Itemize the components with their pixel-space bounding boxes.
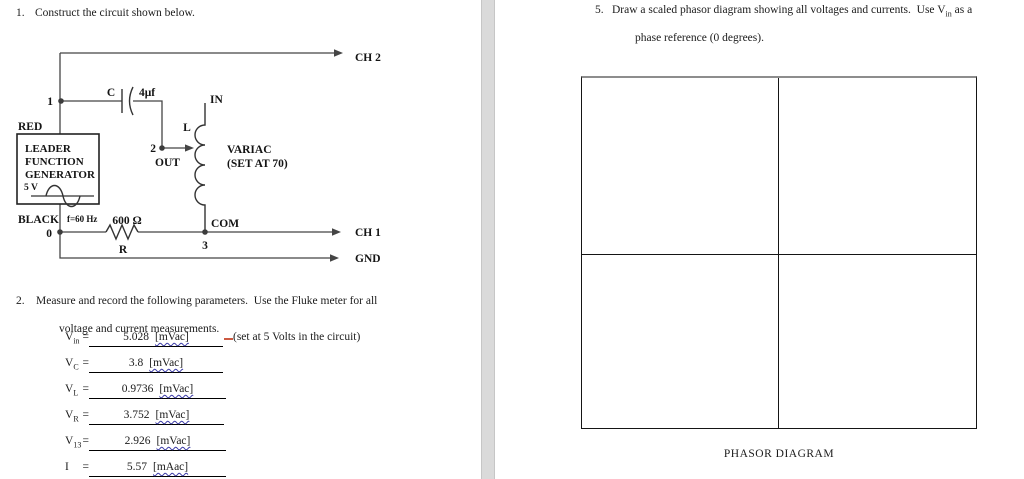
node-0-dot <box>57 229 63 235</box>
node-1-dot <box>58 98 64 104</box>
measurement-unit: [mVac] <box>157 435 191 447</box>
symbol: V13 <box>65 434 81 449</box>
measurement-value: 2.926 <box>125 435 151 447</box>
gnd-label: GND <box>355 253 381 265</box>
variac-label-line1: VARIAC <box>227 144 272 156</box>
question-1: 1. Construct the circuit shown below. <box>16 6 195 20</box>
arrowhead-variac-tap <box>185 144 194 151</box>
red-lead-label: RED <box>18 121 42 133</box>
measurement-row-vr: VR= 3.752[mVac] <box>65 408 224 425</box>
measurement-label: VC= <box>65 356 89 371</box>
ch2-label: CH 2 <box>355 52 381 64</box>
node-2-label: 2 <box>150 143 156 155</box>
phasor-grid-cell-top-left <box>582 78 778 254</box>
inductor-name: L <box>183 122 191 134</box>
symbol: Vin <box>65 330 80 345</box>
question-5-text: Draw a scaled phasor diagram showing all… <box>612 3 972 45</box>
document-view: 1. Construct the circuit shown below. <box>0 0 1024 479</box>
question-5-line2: phase reference (0 degrees). <box>635 32 764 44</box>
wire-capacitor-to-node2 <box>133 101 162 146</box>
capacitor-plate-right <box>130 87 134 115</box>
measurement-value: 5.028 <box>123 331 149 343</box>
measurement-label: V13= <box>65 434 89 449</box>
measurement-row-v13: V13= 2.926[mVac] <box>65 434 226 451</box>
grammar-mark <box>224 334 233 340</box>
symbol: VL <box>65 382 78 397</box>
measurement-value: 0.9736 <box>122 383 154 395</box>
generator-label-line2: FUNCTION <box>25 156 84 168</box>
fill-in-blank: 3.752[mVac] <box>89 408 224 425</box>
measurement-unit: [mAac] <box>153 461 188 473</box>
symbol: VR <box>65 408 79 423</box>
node-3-dot <box>202 229 208 235</box>
measurement-row-i: I= 5.57[mAac] <box>65 460 226 477</box>
measurement-row-vc: VC= 3.8[mVac] <box>65 356 223 373</box>
fill-in-blank: 0.9736[mVac] <box>89 382 226 399</box>
frequency-label: f=60 Hz <box>67 214 97 224</box>
measurement-unit: [mVac] <box>156 409 190 421</box>
fill-in-blank: 2.926[mVac] <box>89 434 226 451</box>
arrowhead-gnd <box>330 254 339 262</box>
capacitor-value: 4μf <box>139 87 155 99</box>
phasor-grid-cell-bottom-left <box>582 252 778 428</box>
page-divider <box>481 0 495 479</box>
node-2-dot <box>159 145 165 151</box>
node-1-label: 1 <box>47 96 53 108</box>
circuit-wires <box>60 49 343 262</box>
measurement-unit: [mVac] <box>149 357 183 369</box>
measurement-note: (set at 5 Volts in the circuit) <box>233 330 360 345</box>
phasor-grid <box>581 76 977 429</box>
resistor-zigzag <box>106 225 138 239</box>
question-2-number: 2. <box>16 294 36 336</box>
resistor-name: R <box>119 244 128 256</box>
symbol: I <box>65 460 69 475</box>
resistor-value: 600 Ω <box>112 215 141 227</box>
question-2-line1: Measure and record the following paramet… <box>36 295 377 307</box>
measurement-label: VR= <box>65 408 89 423</box>
black-lead-label: BLACK <box>18 214 59 226</box>
generator-voltage: 5 V <box>24 183 38 193</box>
measurement-unit: [mVac] <box>155 331 189 343</box>
symbol: VC <box>65 356 79 371</box>
ch1-label: CH 1 <box>355 227 381 239</box>
measurement-label: VL= <box>65 382 89 397</box>
measurement-row-vl: VL= 0.9736[mVac] <box>65 382 226 399</box>
fill-in-blank: 5.028[mVac] <box>89 330 223 347</box>
fill-in-blank: 3.8[mVac] <box>89 356 223 373</box>
measurement-value: 5.57 <box>127 461 147 473</box>
question-1-text: Construct the circuit shown below. <box>35 6 195 20</box>
inductor-coil <box>195 103 205 232</box>
circuit-diagram: CH 2 CH 1 GND 1 RED C 4μf 2 OUT IN L VAR… <box>0 40 480 290</box>
generator-label-line1: LEADER <box>25 143 72 155</box>
wire-gnd <box>60 232 330 258</box>
arrowhead-ch2 <box>334 49 343 57</box>
in-label: IN <box>210 94 223 106</box>
fill-in-blank: 5.57[mAac] <box>89 460 226 477</box>
node-3-label: 3 <box>202 240 208 252</box>
phasor-grid-cell-bottom-right <box>780 252 976 428</box>
com-label: COM <box>211 218 239 230</box>
left-page: 1. Construct the circuit shown below. <box>0 0 481 479</box>
measurement-unit: [mVac] <box>159 383 193 395</box>
measurement-value: 3.752 <box>124 409 150 421</box>
question-5-line1: Draw a scaled phasor diagram showing all… <box>612 4 972 16</box>
out-label: OUT <box>155 157 180 169</box>
phasor-grid-cell-top-right <box>780 78 976 254</box>
measurement-label: I= <box>65 460 89 475</box>
circuit-labels: CH 2 CH 1 GND 1 RED C 4μf 2 OUT IN L VAR… <box>18 52 381 265</box>
question-5: 5. Draw a scaled phasor diagram showing … <box>595 3 975 45</box>
question-5-number: 5. <box>595 3 612 45</box>
arrowhead-ch1 <box>332 228 341 236</box>
grid-vertical-line <box>778 78 779 428</box>
generator-label-line3: GENERATOR <box>25 169 96 181</box>
measurement-label: Vin= <box>65 330 89 345</box>
capacitor-name: C <box>107 87 115 99</box>
question-1-number: 1. <box>16 6 35 20</box>
phasor-diagram-caption: PHASOR DIAGRAM <box>581 448 977 460</box>
node-0-label: 0 <box>46 228 52 240</box>
measurement-value: 3.8 <box>129 357 143 369</box>
variac-label-line2: (SET AT 70) <box>227 158 288 170</box>
measurement-row-vin: Vin= 5.028[mVac] (set at 5 Volts in the … <box>65 330 360 347</box>
